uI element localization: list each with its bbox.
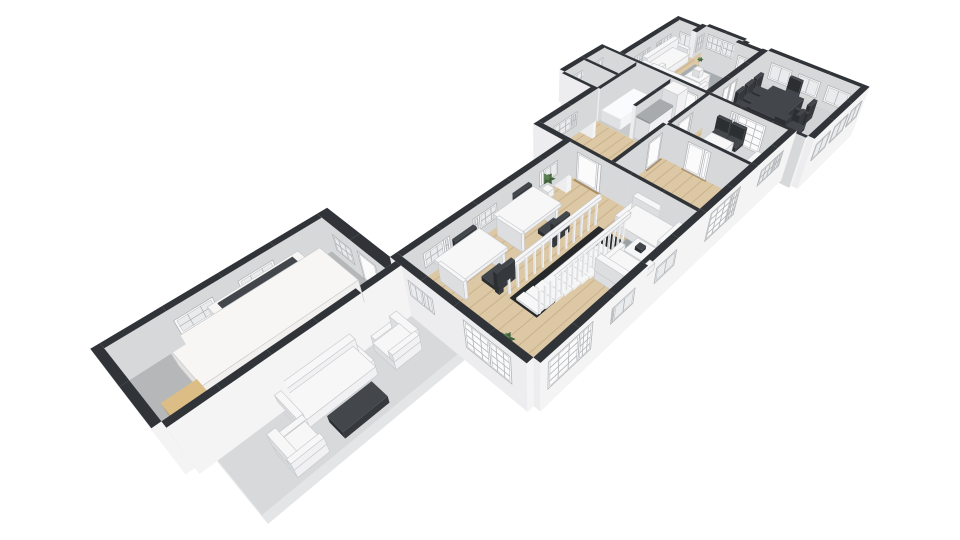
stair-railing-nw-baluster — [524, 256, 527, 282]
stair-railing-se-baluster — [549, 279, 552, 305]
stair-railing-se-baluster — [538, 289, 541, 315]
stair-railing-nw-baluster — [533, 249, 536, 275]
floorplan-canvas — [0, 0, 960, 540]
floorplan-3d-view — [0, 0, 960, 540]
stair-railing-nw-baluster — [549, 236, 552, 262]
stair-railing-nw-baluster — [541, 243, 544, 269]
stair-railing-se-baluster — [544, 284, 547, 310]
